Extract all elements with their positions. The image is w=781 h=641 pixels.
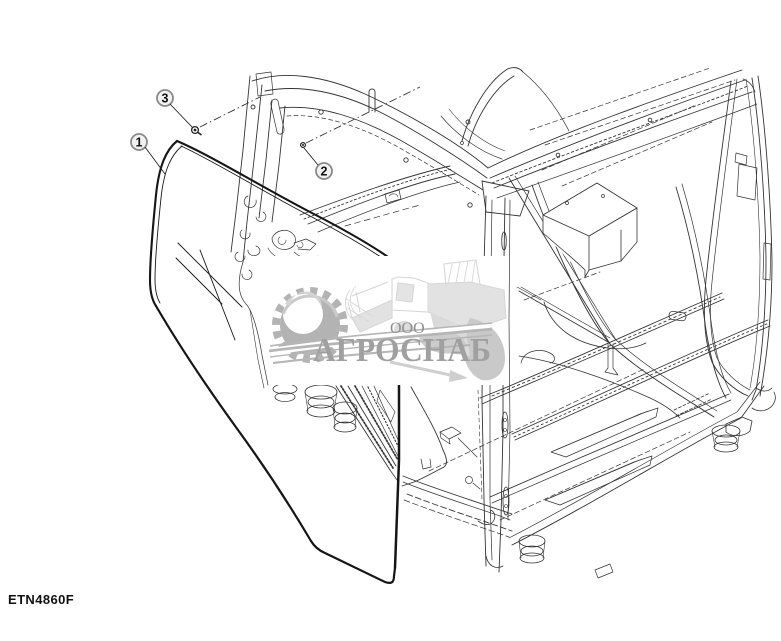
svg-text:АГРОСНАБ: АГРОСНАБ bbox=[313, 332, 491, 369]
svg-text:2: 2 bbox=[321, 165, 328, 179]
svg-text:3: 3 bbox=[162, 92, 169, 106]
svg-text:1: 1 bbox=[136, 136, 143, 150]
svg-text:ETN4860F: ETN4860F bbox=[8, 592, 74, 607]
